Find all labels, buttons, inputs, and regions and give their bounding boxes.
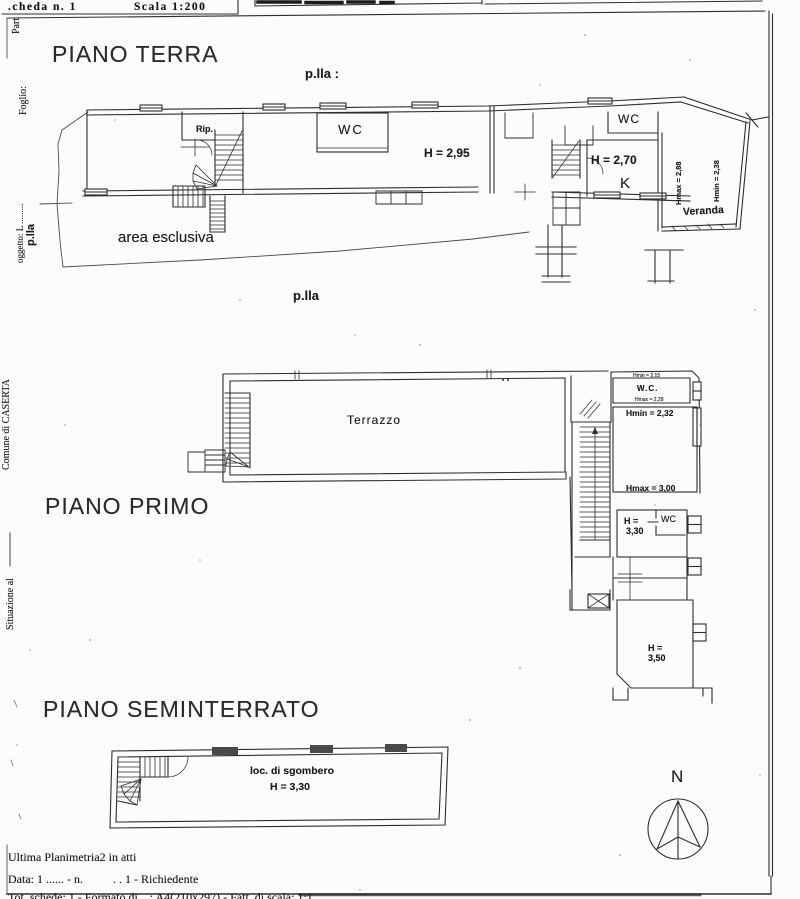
north-label: N xyxy=(671,768,683,786)
footer-data-line: Data: 1 ...... - n. . . 1 - Richiedente xyxy=(8,873,198,886)
margin-foglio-label: Foglio: xyxy=(19,86,30,115)
basement-title: PIANO SEMINTERRATO xyxy=(43,697,320,721)
wc-right-label: WC xyxy=(618,113,640,126)
veranda-hmax-label: Hmax = 2,88 xyxy=(675,161,683,205)
storage-height-label: H = 3,30 xyxy=(270,782,310,793)
planimetria-page: .cheda n. 1 Scala 1:200 Part Foglio: ogg… xyxy=(0,0,800,899)
area-esclusiva-label: area esclusiva xyxy=(118,230,214,246)
kitchen-label: K xyxy=(620,176,630,192)
kitchen-height-label: H = 2,70 xyxy=(591,154,637,167)
stair-first-floor xyxy=(572,422,611,610)
hall-height-label: H = 2,95 xyxy=(424,147,470,160)
parcel-bottom-label: p.lla xyxy=(293,289,319,303)
sheet-number-label: .cheda n. 1 xyxy=(8,1,77,13)
margin-part-label: Part xyxy=(12,18,23,34)
terrazzo-label: Terrazzo xyxy=(347,414,401,427)
margin-situazione-label: Situazione al xyxy=(6,578,17,630)
room-hmax-label: Hmax = 3,00 xyxy=(626,484,675,493)
parcel-top-label: p.lla : xyxy=(305,67,339,81)
wc-hmax-label: Hmax = 2,28 xyxy=(635,398,664,403)
north-compass xyxy=(648,799,708,859)
first-floor-title: PIANO PRIMO xyxy=(45,494,209,518)
footer-format-line: Tot. schede: 1 - Formato di ...: A4(210x… xyxy=(8,891,313,899)
scale-label: Scala 1:200 xyxy=(134,1,206,13)
rip-room-label: Rip. xyxy=(196,125,213,134)
margin-parcel-label: p.lla xyxy=(26,224,38,246)
footer-note: Ultima Planimetria2 in atti xyxy=(8,851,136,864)
ground-floor-title: PIANO TERRA xyxy=(52,42,219,66)
veranda-label: Veranda xyxy=(683,205,724,218)
stair-ground-right xyxy=(552,140,580,225)
wc-mid-label: WC xyxy=(661,515,676,524)
veranda-hmin-label: Hmin = 2,38 xyxy=(713,160,721,202)
room-350-value-label: 3,50 xyxy=(648,654,666,663)
margin-comune-label: Comune di CASERTA xyxy=(2,379,13,470)
storage-room-label: loc. di sgombero xyxy=(250,766,334,777)
wc-small-label: W.C. xyxy=(637,385,658,393)
room-330-value-label: 3,30 xyxy=(626,527,644,536)
ground-floor-plan xyxy=(40,97,768,283)
room-hmin-label: Hmin = 2,32 xyxy=(626,409,673,418)
ground-floor-footings xyxy=(536,225,683,283)
wc-closet-label: WC xyxy=(333,123,369,137)
stair-basement xyxy=(118,757,188,805)
floor-plan-linework xyxy=(0,0,800,899)
first-floor-plan xyxy=(188,370,712,703)
wc-hmin-label: Hmin = 2,15 xyxy=(633,374,660,379)
stair-terrace xyxy=(188,393,250,472)
